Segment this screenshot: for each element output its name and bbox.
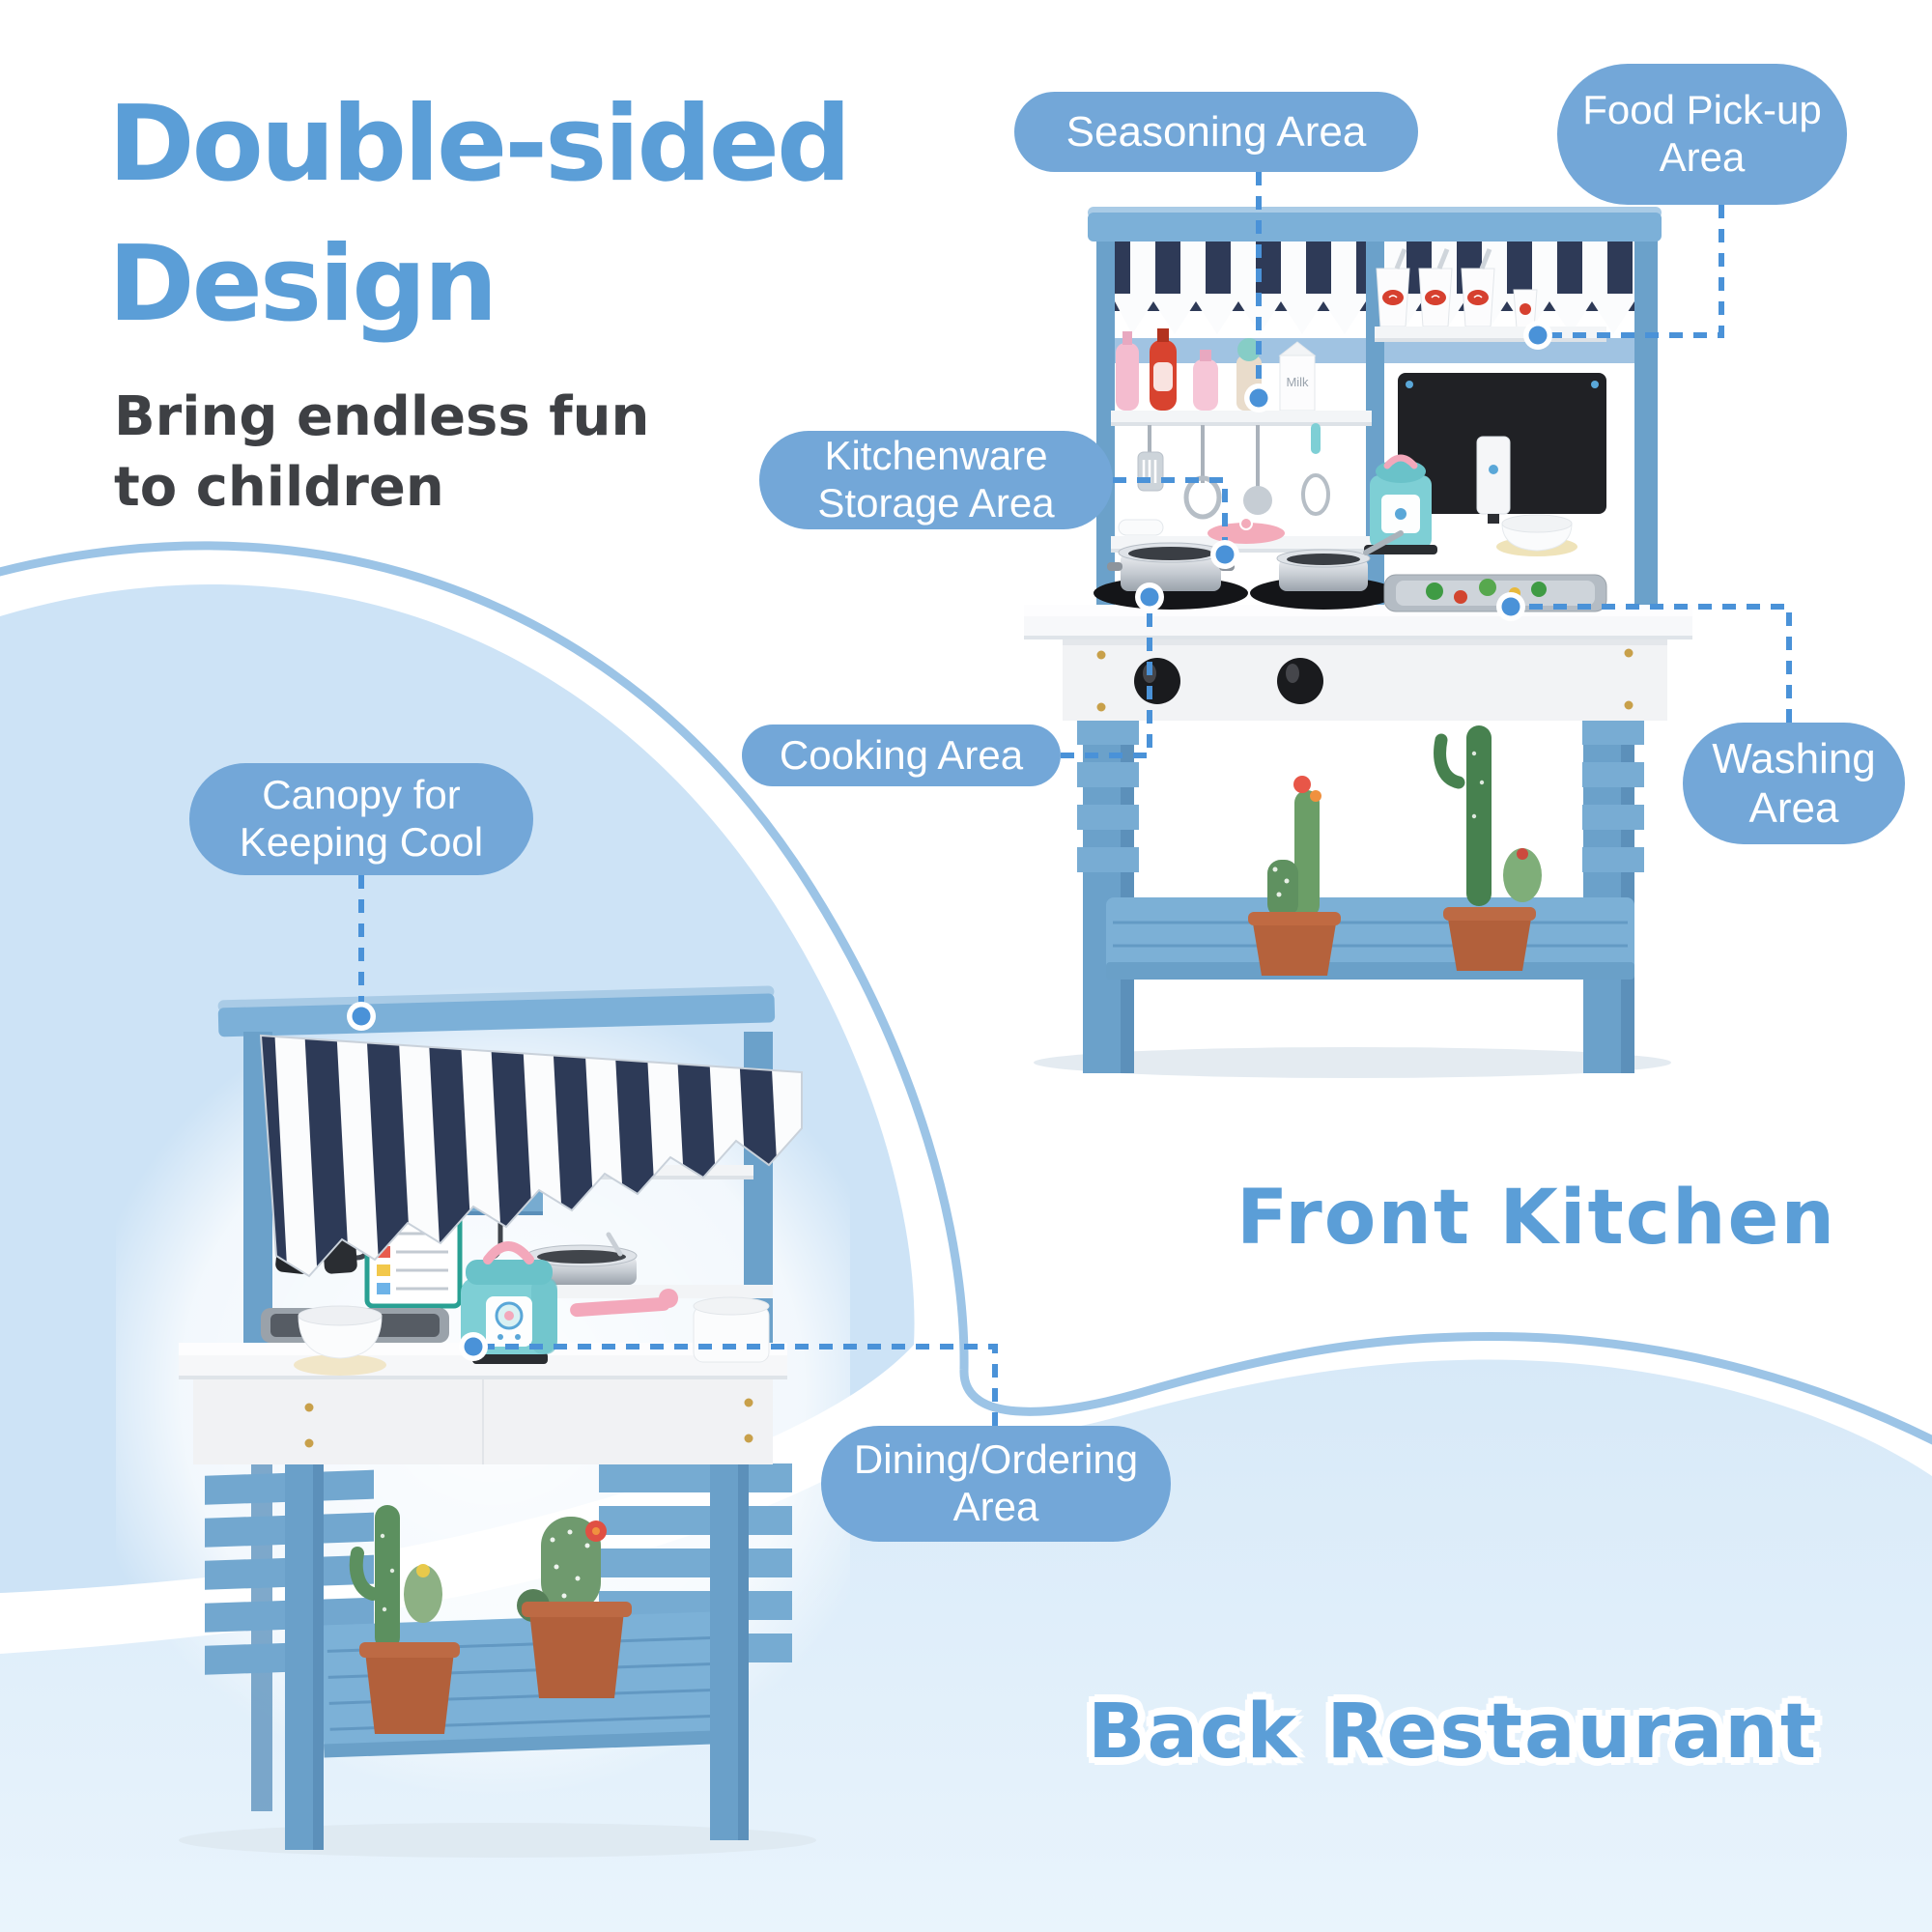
callout-label: Cooking Area	[780, 732, 1023, 780]
callout-label: Kitchenware	[824, 433, 1047, 480]
callout-dining-ordering-area: Dining/Ordering Area	[821, 1426, 1171, 1542]
pot	[1107, 543, 1235, 591]
callout-label: Food Pick-up	[1582, 87, 1821, 134]
toy-cooker	[461, 1246, 557, 1364]
callout-label: Keeping Cool	[240, 819, 483, 867]
page-title: Double-sided Design	[108, 75, 848, 355]
bowl-and-saucer	[294, 1306, 386, 1376]
front-kitchen-heading: Front Kitchen	[1236, 1175, 1836, 1262]
callout-label: Dining/Ordering	[854, 1436, 1138, 1484]
title-line-2: Design	[108, 215, 848, 355]
callout-label: Area	[1749, 783, 1839, 833]
milk-carton: Milk	[1280, 342, 1315, 411]
callout-label: Area	[1660, 134, 1746, 182]
title-line-1: Double-sided	[108, 75, 848, 215]
svg-text:Milk: Milk	[1286, 375, 1309, 389]
callout-washing-area: Washing Area	[1683, 723, 1905, 844]
callout-seasoning-area: Seasoning Area	[1014, 92, 1418, 172]
callout-label: Washing	[1712, 734, 1876, 783]
callout-label: Storage Area	[817, 480, 1054, 527]
callout-food-pickup-area: Food Pick-up Area	[1557, 64, 1847, 205]
subtitle-line-1: Bring endless fun	[114, 383, 649, 453]
washing-sink	[1384, 575, 1606, 611]
callout-label: Seasoning Area	[1066, 107, 1367, 156]
subtitle-line-2: to children	[114, 453, 649, 524]
white-canister	[694, 1297, 769, 1362]
infographic-canvas: Double-sided Design Bring endless fun to…	[0, 0, 1932, 1932]
back-restaurant-photo	[116, 976, 850, 1864]
page-subtitle: Bring endless fun to children	[114, 383, 649, 524]
front-kitchen-photo: Milk	[1005, 193, 1700, 1082]
counter	[1024, 605, 1692, 721]
callout-cooking-area: Cooking Area	[742, 724, 1061, 786]
callout-kitchenware-storage-area: Kitchenware Storage Area	[759, 431, 1113, 529]
callout-canopy: Canopy for Keeping Cool	[189, 763, 533, 875]
stove-knob	[1277, 658, 1323, 704]
stove-knob	[1134, 658, 1180, 704]
back-restaurant-heading: Back Restaurant	[1088, 1689, 1818, 1776]
bottom-shelf	[1106, 897, 1634, 973]
kitchenware-storage	[1111, 423, 1374, 553]
base-frame	[1077, 702, 1644, 1073]
bowl-and-saucer	[1496, 515, 1577, 556]
callout-label: Canopy for	[262, 772, 460, 819]
callout-label: Area	[953, 1484, 1039, 1531]
cup-small	[1514, 290, 1537, 328]
